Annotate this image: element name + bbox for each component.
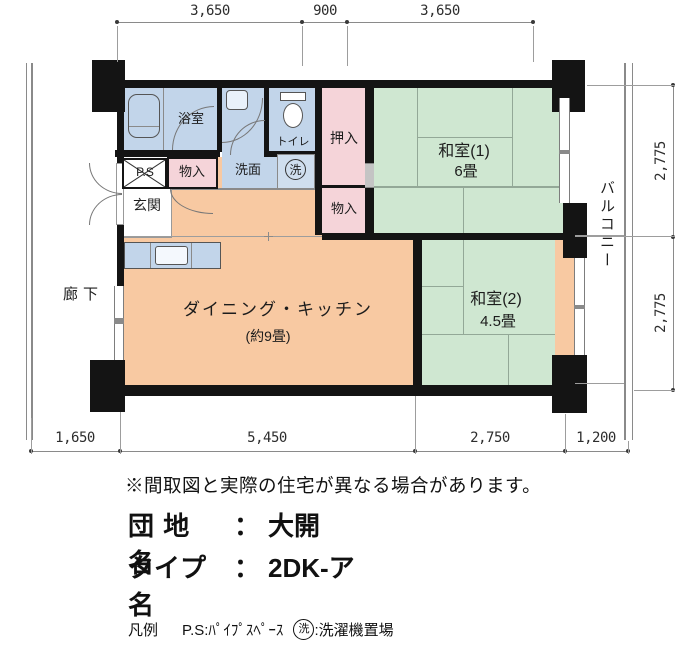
dim-label-top-1: 3,650 (190, 3, 230, 19)
legend-ps-text: P.S:ﾊﾟｲﾌﾟｽﾍﾟｰｽ (182, 619, 283, 640)
dim-tick (531, 20, 535, 24)
bathtub-icon (128, 94, 160, 138)
dim-ext (347, 26, 348, 66)
wall-left (117, 225, 124, 286)
estate-name-value: 大開 (268, 506, 320, 543)
wall-right-mid (563, 203, 587, 258)
label-washitsu1: 和室(1) (438, 143, 490, 161)
legend-title: 凡例 (128, 619, 158, 640)
legend-washer-mark: 洗 (298, 623, 309, 635)
dim-ext (587, 85, 675, 86)
estate-name-colon: ： (234, 506, 260, 543)
dim-label-bottom-1: 1,650 (55, 430, 95, 446)
wall-washitsu-divider (322, 233, 583, 240)
window-mullion (574, 305, 585, 309)
wall-corner-br (552, 355, 587, 413)
dim-ext (628, 441, 629, 454)
dim-label-bottom-3: 2,750 (470, 430, 510, 446)
dim-ext (565, 414, 566, 454)
type-name-line: タイプ名 ： 2DK-ア (128, 548, 355, 622)
wall-oshiire-left (315, 84, 322, 235)
dim-line-top (117, 22, 533, 23)
washer-circle: 洗 (285, 159, 306, 180)
wall-top (117, 80, 585, 88)
tatami-line (463, 240, 464, 335)
dim-ext (533, 26, 534, 62)
dim-label-bottom-4: 1,200 (576, 430, 616, 446)
dk-module-line (124, 236, 322, 237)
label-balcony: バルコニー (596, 180, 617, 310)
label-toilet: トイレ (277, 136, 310, 148)
wall-washitsu1-left-upper (365, 84, 374, 163)
label-washitsu2: 和室(2) (470, 291, 522, 309)
label-corridor: 廊下 (63, 287, 103, 304)
label-entrance: 玄関 (133, 198, 161, 213)
window-washitsu2-balcony (574, 258, 585, 307)
dim-label-right-2: 2,775 (653, 293, 669, 333)
label-entry-storage: 物入 (179, 165, 205, 179)
toilet-bowl-icon (283, 103, 303, 128)
dim-tick (115, 20, 119, 24)
label-washitsu1-size: 6畳 (454, 164, 477, 181)
plus-mark (268, 232, 269, 241)
balcony-rail-line (624, 63, 626, 440)
label-oshiire: 押入 (330, 131, 358, 146)
label-washitsu2-size: 4.5畳 (480, 314, 516, 331)
disclaimer-note: ※間取図と実際の住宅が異なる場合があります。 (125, 472, 541, 498)
counter-divider (150, 243, 151, 268)
legend-line: 凡例 P.S:ﾊﾟｲﾌﾟｽﾍﾟｰｽ 洗 :洗濯機置場 (128, 619, 394, 640)
dim-label-top-2: 900 (313, 3, 337, 19)
label-dk-size: (約9畳) (245, 329, 290, 344)
corridor-edge-line (31, 63, 33, 440)
wall-oshiire-separator (322, 185, 365, 188)
wall-bottom (117, 385, 573, 396)
tatami-line (463, 188, 464, 233)
dim-label-bottom-2: 5,450 (247, 430, 287, 446)
tatami-line (374, 186, 566, 188)
label-washroom: 洗面 (235, 163, 261, 177)
window-mullion (114, 318, 124, 324)
dim-ext (117, 26, 118, 62)
dim-ext (120, 412, 121, 454)
label-dk: ダイニング・キッチン (183, 301, 373, 320)
dim-tick (345, 20, 349, 24)
label-pipe-space: P.S (136, 166, 154, 179)
tatami-line (508, 335, 509, 385)
dim-label-right-1: 2,775 (653, 141, 669, 181)
window-washitsu2-balcony (574, 309, 585, 355)
tatami-line (422, 334, 555, 335)
type-name-label: タイプ名 (128, 548, 220, 622)
wall-under-bath (115, 150, 220, 157)
window-mullion (559, 150, 570, 154)
wall-left (117, 358, 124, 396)
dim-ext (415, 396, 416, 454)
legend-washer-circle: 洗 (293, 619, 314, 640)
type-name-value: 2DK-ア (268, 548, 355, 585)
sliding-door-washitsu1 (365, 163, 374, 188)
toilet-tank-icon (280, 92, 306, 101)
floor-plan-page: 洗 3,650 900 3,650 2,775 2,775 (0, 0, 700, 650)
entrance-door-arc (89, 194, 122, 225)
dim-tick (300, 20, 304, 24)
label-bath: 浴室 (178, 112, 204, 126)
dim-ext (575, 236, 675, 237)
type-name-colon: ： (234, 548, 260, 585)
kitchen-sink-icon (155, 246, 188, 265)
balcony-divider (575, 383, 624, 384)
tatami-line (422, 286, 463, 287)
wall-dk-washitsu2 (413, 233, 422, 396)
counter-divider (191, 243, 192, 268)
dim-label-top-3: 3,650 (420, 3, 460, 19)
dim-ext (634, 390, 675, 391)
tatami-line (417, 137, 513, 138)
corridor-edge-line (26, 63, 27, 440)
dim-ext (302, 26, 303, 66)
label-hall-storage: 物入 (331, 202, 357, 216)
dim-ext (31, 418, 32, 454)
bath-divider (163, 88, 164, 150)
legend-washer-text: :洗濯機置場 (314, 619, 393, 640)
bathtub-line (129, 126, 159, 127)
balcony-rail-line (632, 63, 633, 440)
entrance-door-arc (89, 163, 122, 194)
washer-circle-label: 洗 (289, 163, 301, 177)
